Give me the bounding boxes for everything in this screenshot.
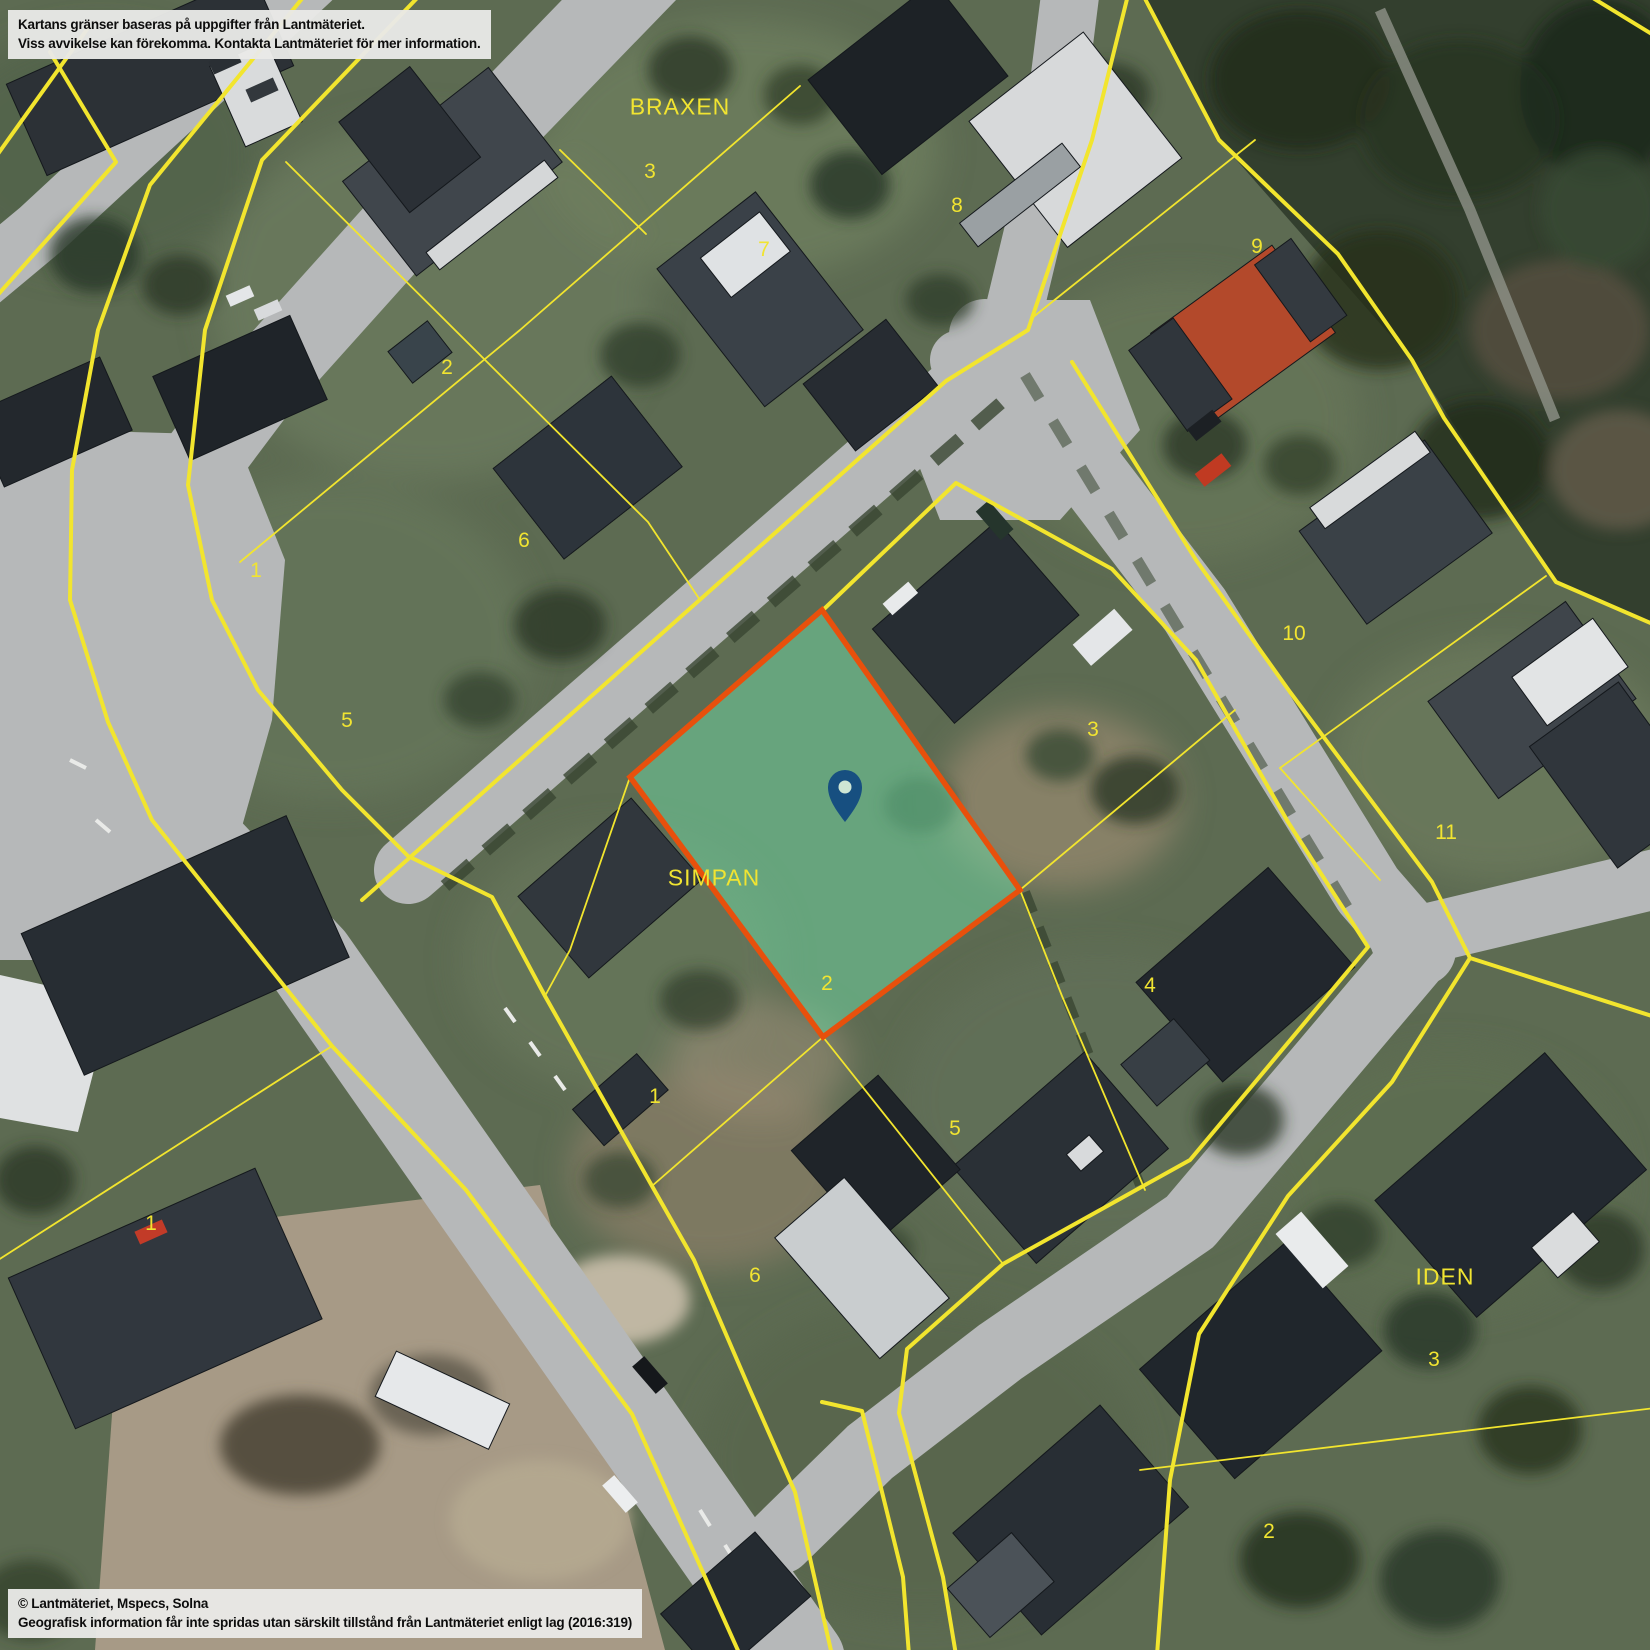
- aerial-basemap: [0, 0, 1650, 1650]
- copyright-line-1: © Lantmäteriet, Mspecs, Solna: [18, 1594, 632, 1613]
- disclaimer-line-1: Kartans gränser baseras på uppgifter frå…: [18, 15, 481, 34]
- map-canvas[interactable]: BRAXENSIMPANIDEN378926151031142156132 Ka…: [0, 0, 1650, 1650]
- map-disclaimer: Kartans gränser baseras på uppgifter frå…: [8, 10, 491, 59]
- copyright-notice: © Lantmäteriet, Mspecs, Solna Geografisk…: [8, 1589, 642, 1638]
- copyright-line-2: Geografisk information får inte spridas …: [18, 1613, 632, 1632]
- disclaimer-line-2: Viss avvikelse kan förekomma. Kontakta L…: [18, 34, 481, 53]
